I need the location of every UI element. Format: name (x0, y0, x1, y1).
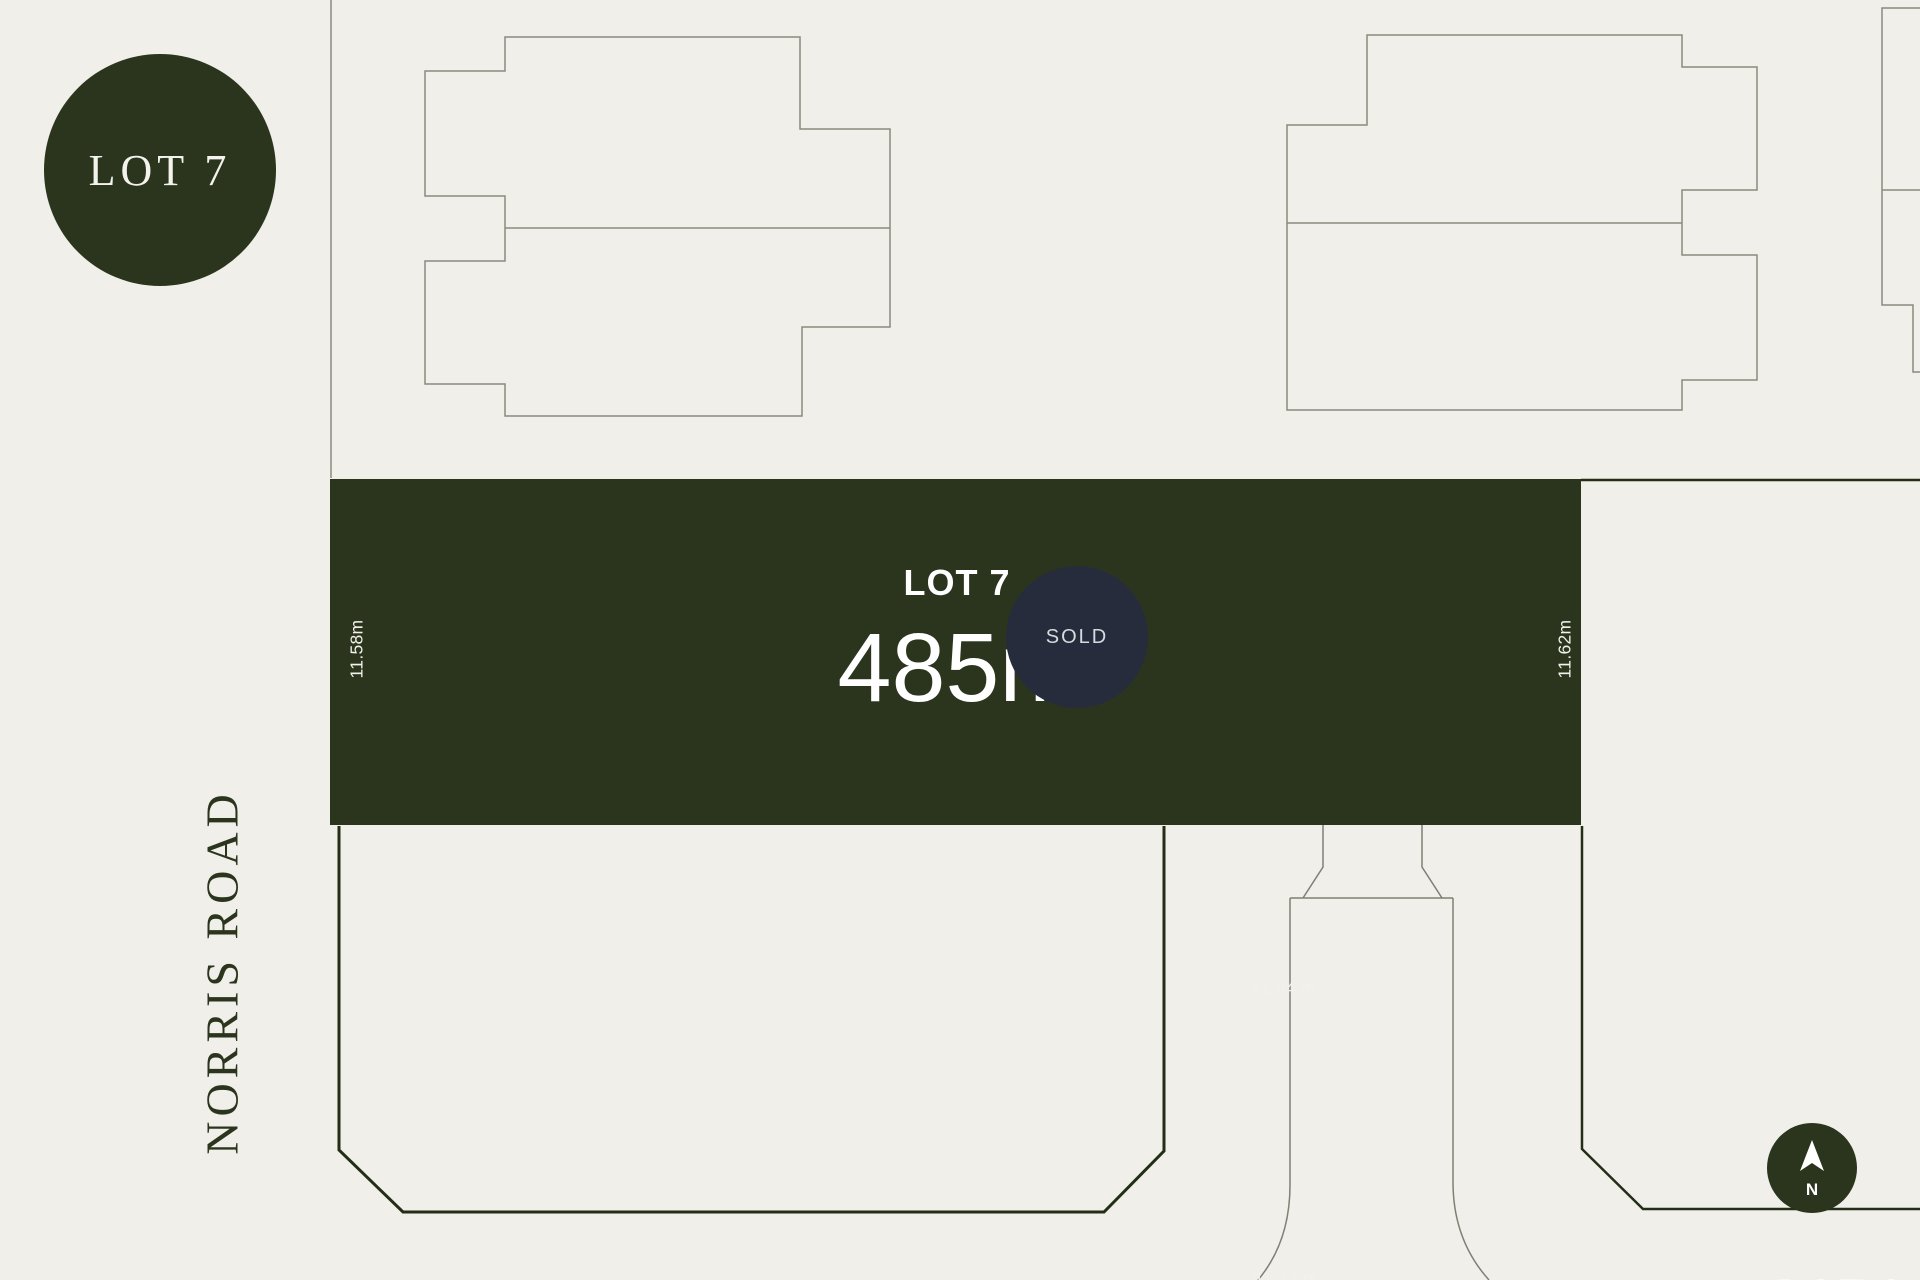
lot-number-label: LOT 7 (89, 145, 232, 196)
north-label: N (1806, 1180, 1818, 1200)
driveway-outline (1258, 825, 1489, 1280)
sold-status-label: SOLD (1046, 626, 1108, 649)
lower-lot-outline (339, 826, 1164, 1212)
site-plan: 41.94 m 41.74 m 11.58m 11.62m LOT 7 485m… (0, 0, 1920, 1280)
sold-status-badge: SOLD (1006, 566, 1148, 708)
dimension-top: 41.94 m (1250, 978, 1315, 999)
road-name-label: NORRIS ROAD (196, 789, 249, 1155)
dimension-left: 11.58m (347, 620, 368, 679)
dimension-bottom: 41.74 m (1252, 1268, 1317, 1280)
lot-number-badge: LOT 7 (44, 54, 276, 286)
partial-lot-label: LOT 8 (1778, 1269, 1905, 1280)
building-outline-far-right (1882, 8, 1920, 372)
right-lot-outline (1581, 480, 1920, 1209)
north-indicator: N (1767, 1123, 1857, 1213)
building-outline-left (425, 37, 890, 416)
lot-title: LOT 7 (903, 562, 1010, 604)
building-outline-right (1287, 35, 1757, 410)
dimension-right: 11.62m (1555, 620, 1576, 679)
